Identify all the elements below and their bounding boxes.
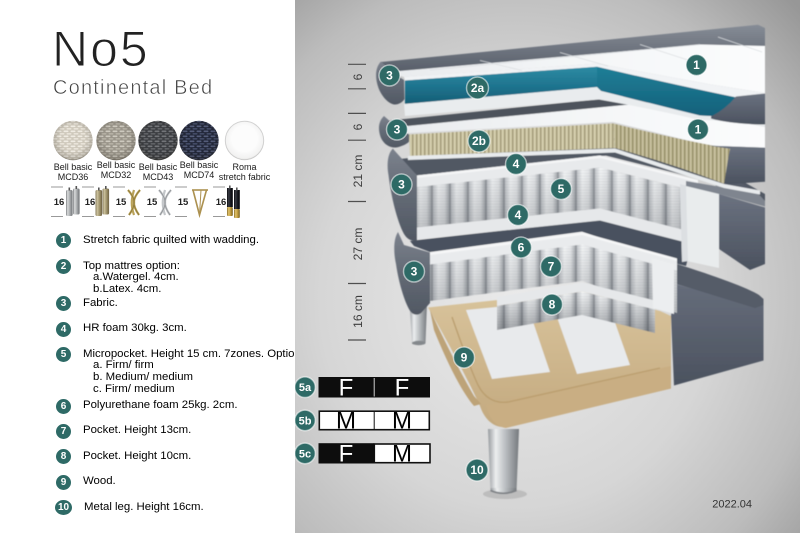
svg-text:F: F <box>395 375 410 402</box>
svg-text:1: 1 <box>695 123 702 137</box>
svg-text:5c: 5c <box>299 448 311 460</box>
svg-text:F: F <box>339 375 354 402</box>
svg-text:15: 15 <box>116 197 127 208</box>
svg-text:3: 3 <box>398 178 405 192</box>
svg-text:4: 4 <box>515 208 522 222</box>
svg-text:10: 10 <box>470 463 484 477</box>
svg-text:3: 3 <box>411 265 418 279</box>
svg-text:15: 15 <box>147 197 158 208</box>
svg-text:9: 9 <box>461 351 468 365</box>
svg-text:4: 4 <box>513 157 520 171</box>
svg-text:6: 6 <box>351 73 365 80</box>
svg-text:16: 16 <box>54 197 65 208</box>
svg-text:M: M <box>392 408 412 435</box>
svg-text:2a: 2a <box>471 81 485 95</box>
svg-text:3: 3 <box>394 123 401 137</box>
svg-text:7: 7 <box>548 260 555 274</box>
svg-text:2b: 2b <box>472 134 486 148</box>
svg-text:2022.04: 2022.04 <box>712 499 752 511</box>
svg-text:15: 15 <box>178 197 189 208</box>
svg-text:6: 6 <box>518 241 525 255</box>
svg-text:27 cm: 27 cm <box>351 228 365 261</box>
svg-text:21 cm: 21 cm <box>351 155 365 188</box>
svg-text:M: M <box>392 441 412 468</box>
svg-text:5a: 5a <box>299 382 312 394</box>
svg-text:3: 3 <box>386 69 393 83</box>
svg-text:M: M <box>336 408 356 435</box>
svg-text:8: 8 <box>549 298 556 312</box>
svg-text:16: 16 <box>216 197 227 208</box>
svg-text:6: 6 <box>351 123 365 130</box>
svg-text:16: 16 <box>85 197 96 208</box>
svg-text:5b: 5b <box>299 415 312 427</box>
svg-text:5: 5 <box>558 182 565 196</box>
svg-text:1: 1 <box>693 58 700 72</box>
svg-text:F: F <box>339 441 354 468</box>
svg-text:16 cm: 16 cm <box>351 295 365 328</box>
